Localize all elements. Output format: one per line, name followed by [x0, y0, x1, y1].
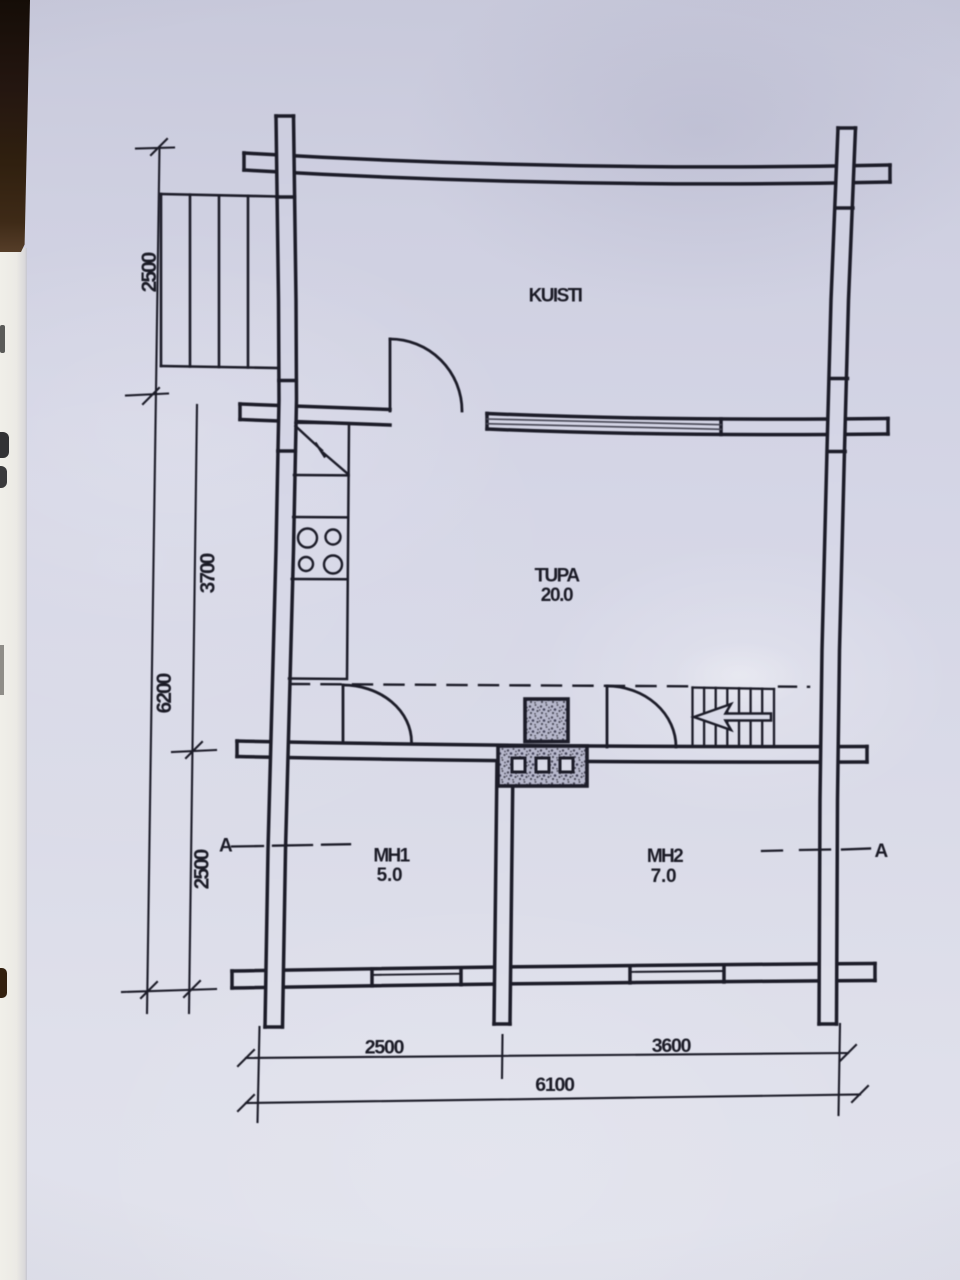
svg-text:6200: 6200: [153, 673, 176, 713]
svg-text:2500: 2500: [138, 252, 161, 292]
svg-text:KUISTI: KUISTI: [529, 286, 583, 307]
svg-text:2500: 2500: [365, 1037, 405, 1059]
svg-text:3600: 3600: [652, 1035, 692, 1057]
svg-text:A: A: [874, 841, 888, 862]
svg-text:6100: 6100: [535, 1074, 575, 1096]
svg-text:2500: 2500: [191, 849, 214, 889]
svg-text:7.0: 7.0: [651, 866, 677, 887]
svg-text:MH1: MH1: [373, 846, 410, 867]
svg-text:20.0: 20.0: [541, 585, 573, 606]
svg-text:3700: 3700: [197, 553, 220, 593]
svg-text:A: A: [219, 835, 233, 856]
svg-text:5.0: 5.0: [377, 865, 403, 886]
svg-text:TUPA: TUPA: [535, 566, 581, 587]
svg-text:MH2: MH2: [647, 846, 683, 867]
